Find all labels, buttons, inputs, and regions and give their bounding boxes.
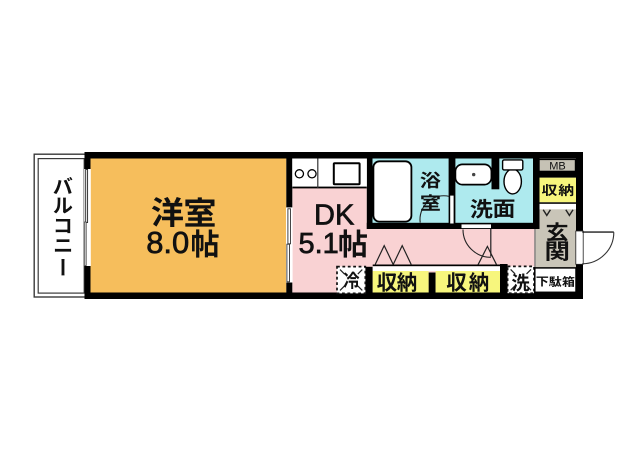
svg-text:MB: MB (549, 160, 566, 172)
svg-text:5.1: 5.1 (299, 228, 339, 260)
svg-text:DK: DK (314, 200, 355, 232)
svg-text:8.0: 8.0 (146, 225, 189, 260)
